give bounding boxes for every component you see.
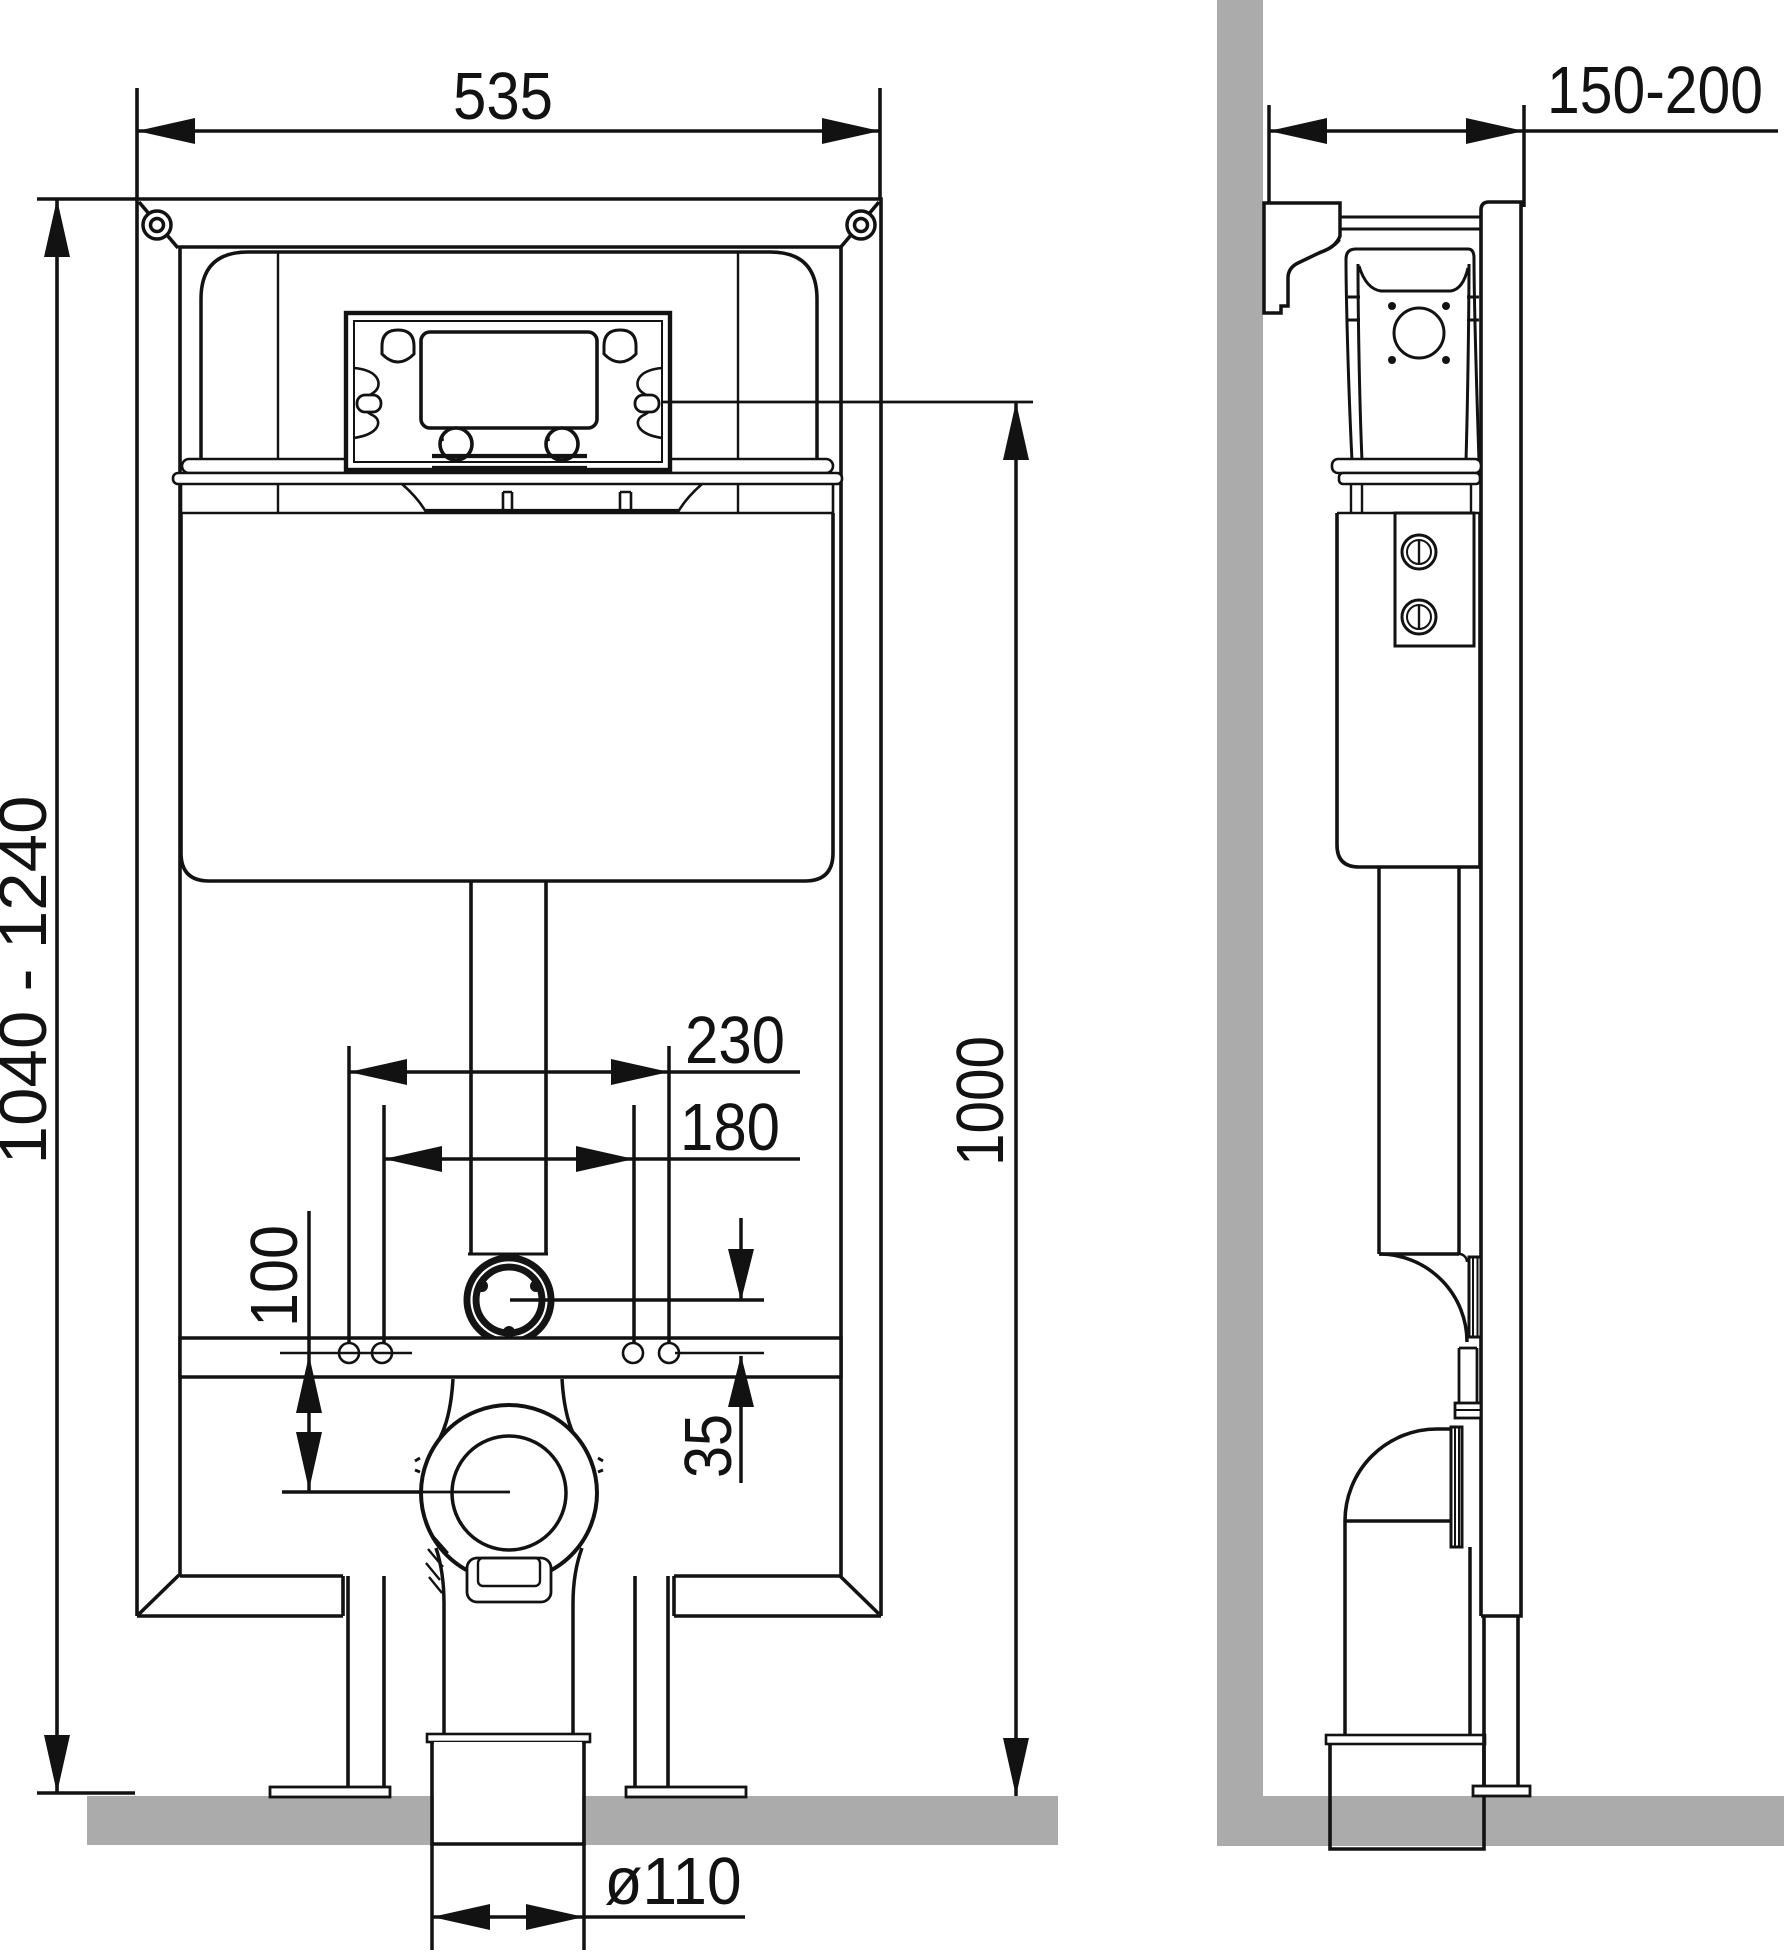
svg-text:230: 230: [685, 1003, 785, 1078]
svg-text:1000: 1000: [943, 1036, 1018, 1166]
svg-text:535: 535: [453, 59, 553, 134]
svg-text:ø110: ø110: [605, 1844, 742, 1919]
svg-text:150-200: 150-200: [1547, 53, 1763, 128]
svg-text:180: 180: [680, 1090, 780, 1165]
svg-text:35: 35: [671, 1414, 746, 1478]
svg-text:100: 100: [237, 1225, 312, 1327]
svg-text:1040 - 1240: 1040 - 1240: [0, 796, 61, 1165]
